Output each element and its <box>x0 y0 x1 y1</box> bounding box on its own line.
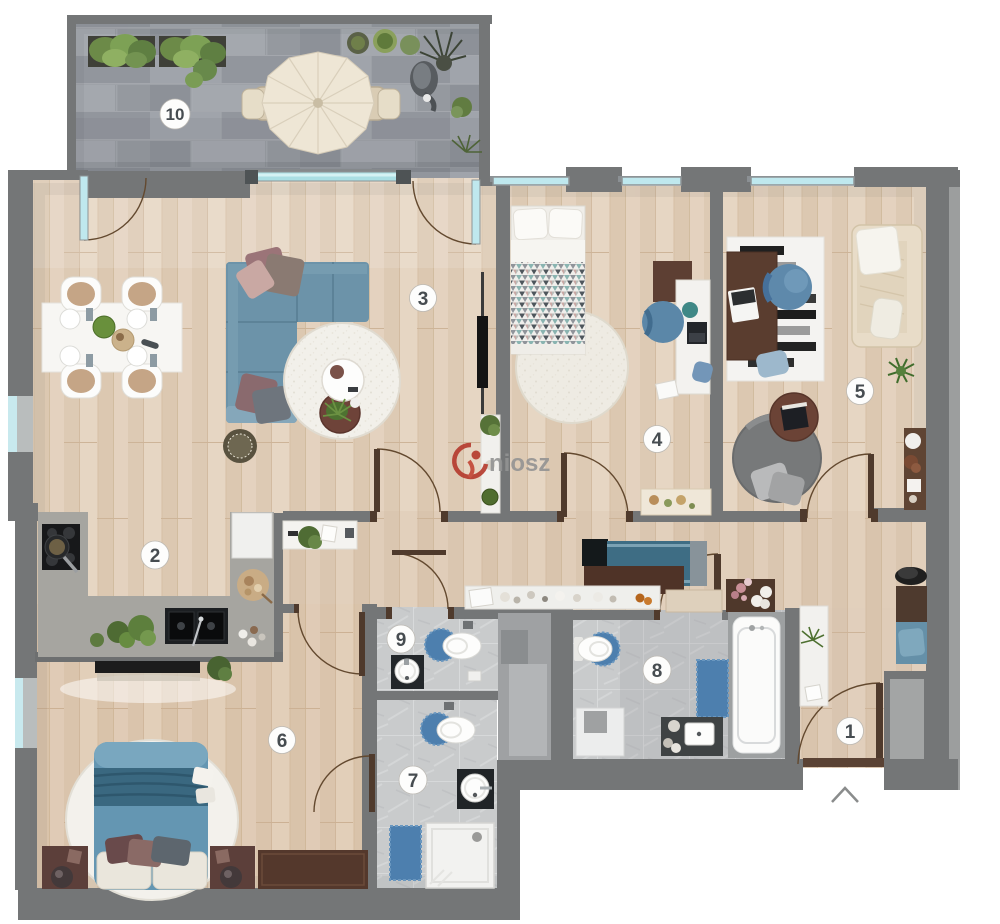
svg-text:5: 5 <box>855 382 866 403</box>
svg-text:7: 7 <box>408 771 419 792</box>
svg-text:6: 6 <box>277 731 288 752</box>
svg-text:1: 1 <box>845 722 856 743</box>
svg-text:4: 4 <box>652 430 663 451</box>
svg-text:8: 8 <box>652 661 663 682</box>
svg-text:10: 10 <box>166 105 185 124</box>
svg-text:niosz: niosz <box>489 450 550 477</box>
svg-text:3: 3 <box>418 289 429 310</box>
svg-text:2: 2 <box>150 546 161 567</box>
svg-text:9: 9 <box>396 630 407 651</box>
